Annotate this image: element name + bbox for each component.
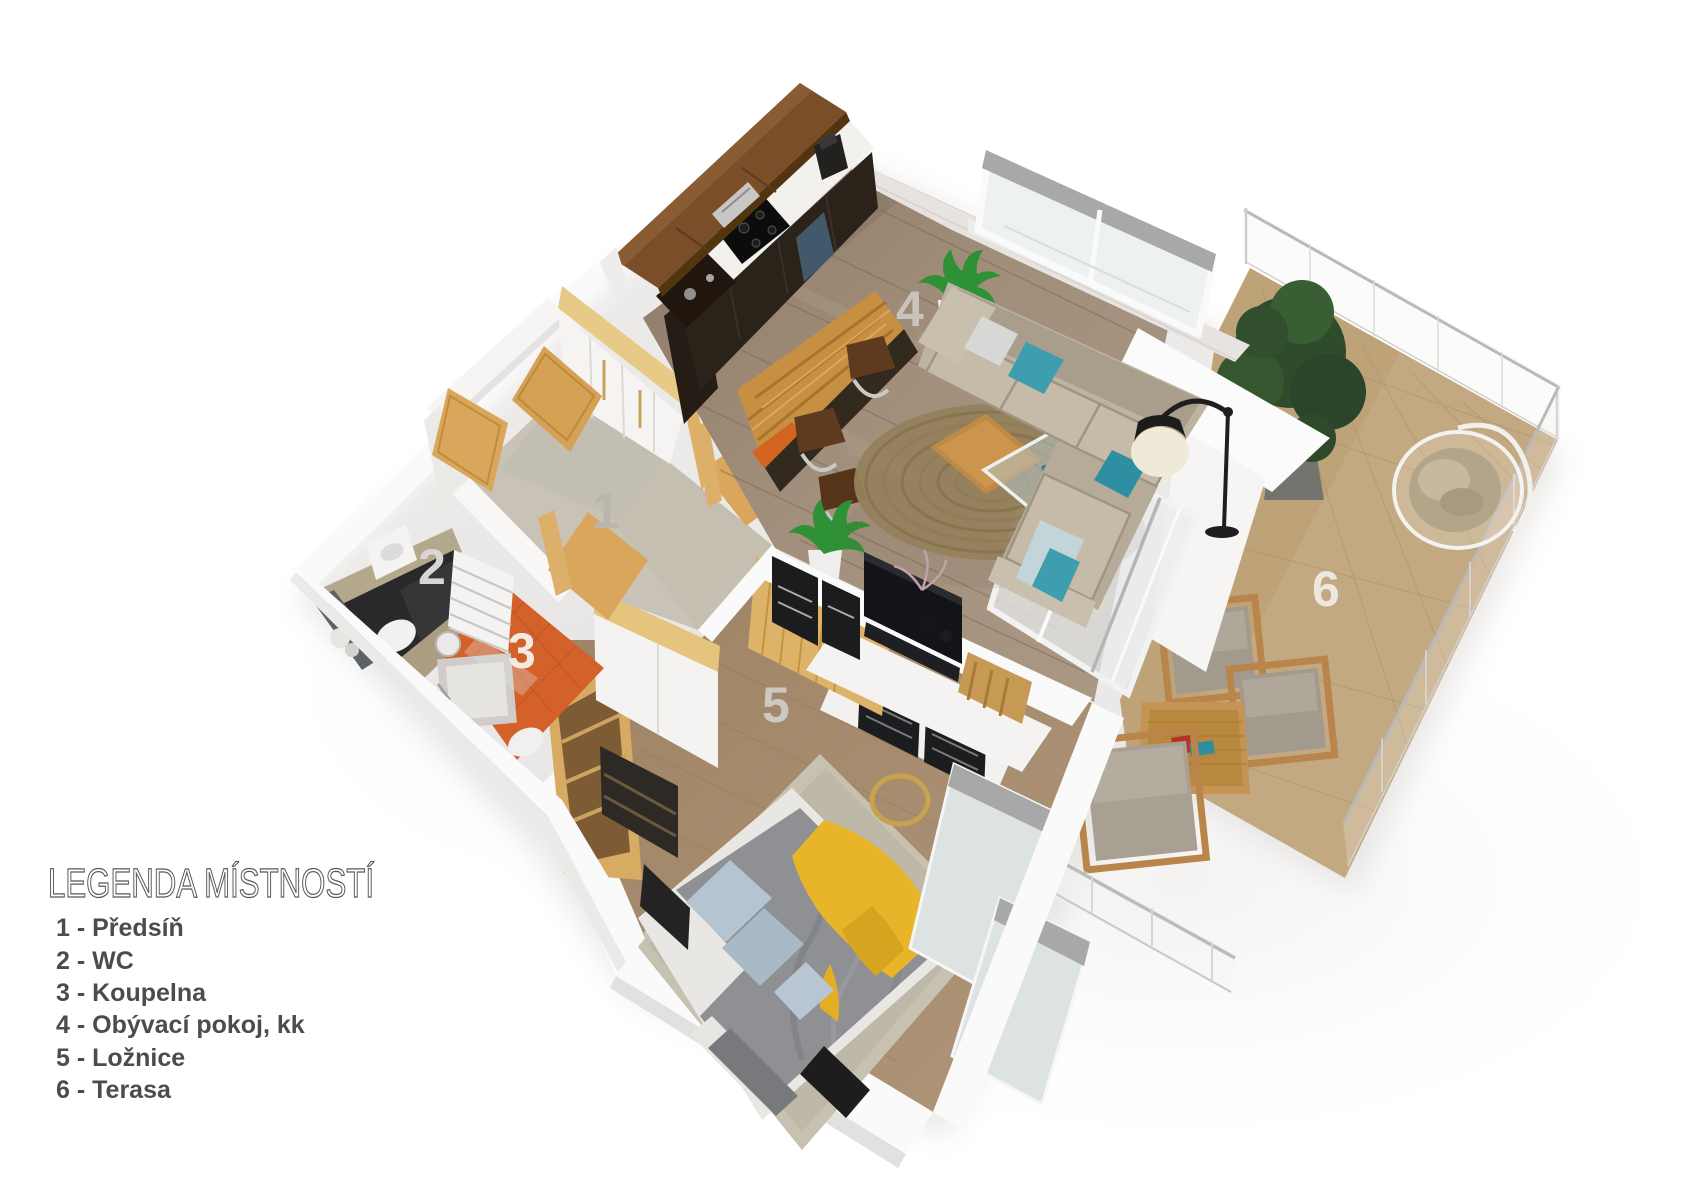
svg-text:1 - Předsíň: 1 - Předsíň [56,914,184,942]
svg-text:2: 2 [418,539,446,595]
svg-text:LEGENDA MÍSTNOSTÍ: LEGENDA MÍSTNOSTÍ [48,860,374,906]
svg-text:3: 3 [508,623,536,679]
svg-text:5: 5 [762,677,790,733]
svg-text:6 - Terasa: 6 - Terasa [56,1076,172,1104]
svg-text:4 - Obývací pokoj, kk: 4 - Obývací pokoj, kk [56,1011,305,1039]
svg-text:2 - WC: 2 - WC [56,947,134,975]
svg-text:4: 4 [896,281,924,337]
svg-text:3 - Koupelna: 3 - Koupelna [56,979,207,1007]
svg-text:6: 6 [1312,561,1340,617]
svg-text:1: 1 [592,483,620,539]
svg-text:5 - Ložnice: 5 - Ložnice [56,1044,185,1072]
